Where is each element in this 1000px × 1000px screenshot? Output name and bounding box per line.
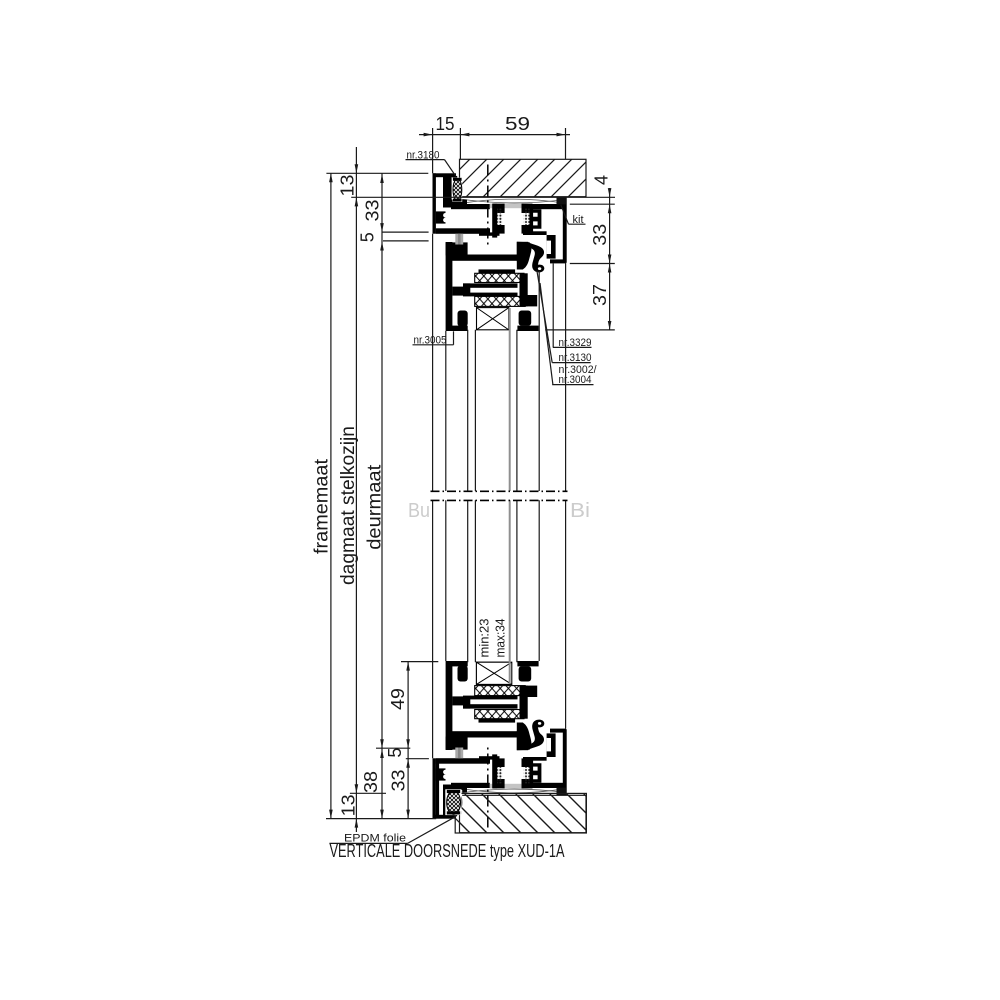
svg-text:4: 4	[592, 175, 612, 185]
svg-text:33: 33	[363, 200, 383, 222]
svg-text:15: 15	[436, 114, 455, 134]
svg-text:49: 49	[388, 688, 408, 710]
svg-text:33: 33	[590, 224, 610, 246]
svg-text:framemaat: framemaat	[312, 458, 333, 554]
svg-text:13: 13	[338, 794, 358, 816]
svg-text:37: 37	[590, 284, 610, 306]
svg-text:13: 13	[338, 175, 358, 197]
svg-text:dagmaat stelkozijn: dagmaat stelkozijn	[338, 426, 359, 585]
svg-text:min:23: min:23	[477, 619, 492, 658]
svg-text:5: 5	[358, 232, 378, 242]
svg-text:Bu: Bu	[408, 500, 430, 522]
svg-text:deurmaat: deurmaat	[364, 464, 385, 550]
svg-text:38: 38	[361, 771, 381, 793]
svg-text:VERTICALE DOORSNEDE type XUD-1: VERTICALE DOORSNEDE type XUD-1A	[330, 841, 565, 861]
svg-text:33: 33	[389, 770, 409, 792]
svg-text:5: 5	[385, 748, 405, 758]
svg-text:max:34: max:34	[493, 619, 508, 658]
svg-text:59: 59	[505, 114, 530, 134]
svg-text:Bi: Bi	[570, 500, 590, 522]
